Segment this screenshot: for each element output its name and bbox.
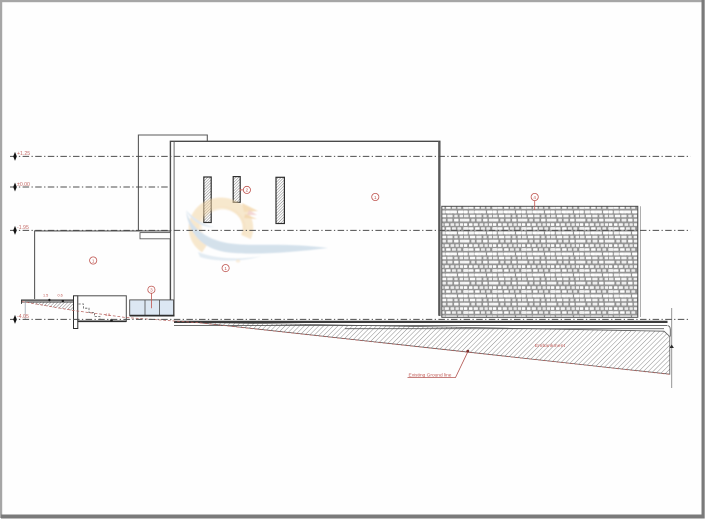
svg-text:+1.25: +1.25 <box>17 151 30 157</box>
svg-text:±0.00: ±0.00 <box>17 182 30 188</box>
svg-text:-1.95: -1.95 <box>17 225 29 231</box>
svg-text:2: 2 <box>246 188 249 193</box>
svg-text:Existing Ground line: Existing Ground line <box>409 372 452 378</box>
svg-text:4: 4 <box>533 195 536 200</box>
svg-text:Embankment: Embankment <box>535 343 566 349</box>
svg-text:1.5: 1.5 <box>43 293 48 297</box>
svg-text:3: 3 <box>150 288 153 293</box>
svg-text:1: 1 <box>224 266 227 271</box>
svg-text:-4.05: -4.05 <box>17 314 29 320</box>
svg-text:1: 1 <box>374 195 377 200</box>
svg-text:0.6: 0.6 <box>58 293 63 297</box>
svg-text:1: 1 <box>92 258 95 263</box>
